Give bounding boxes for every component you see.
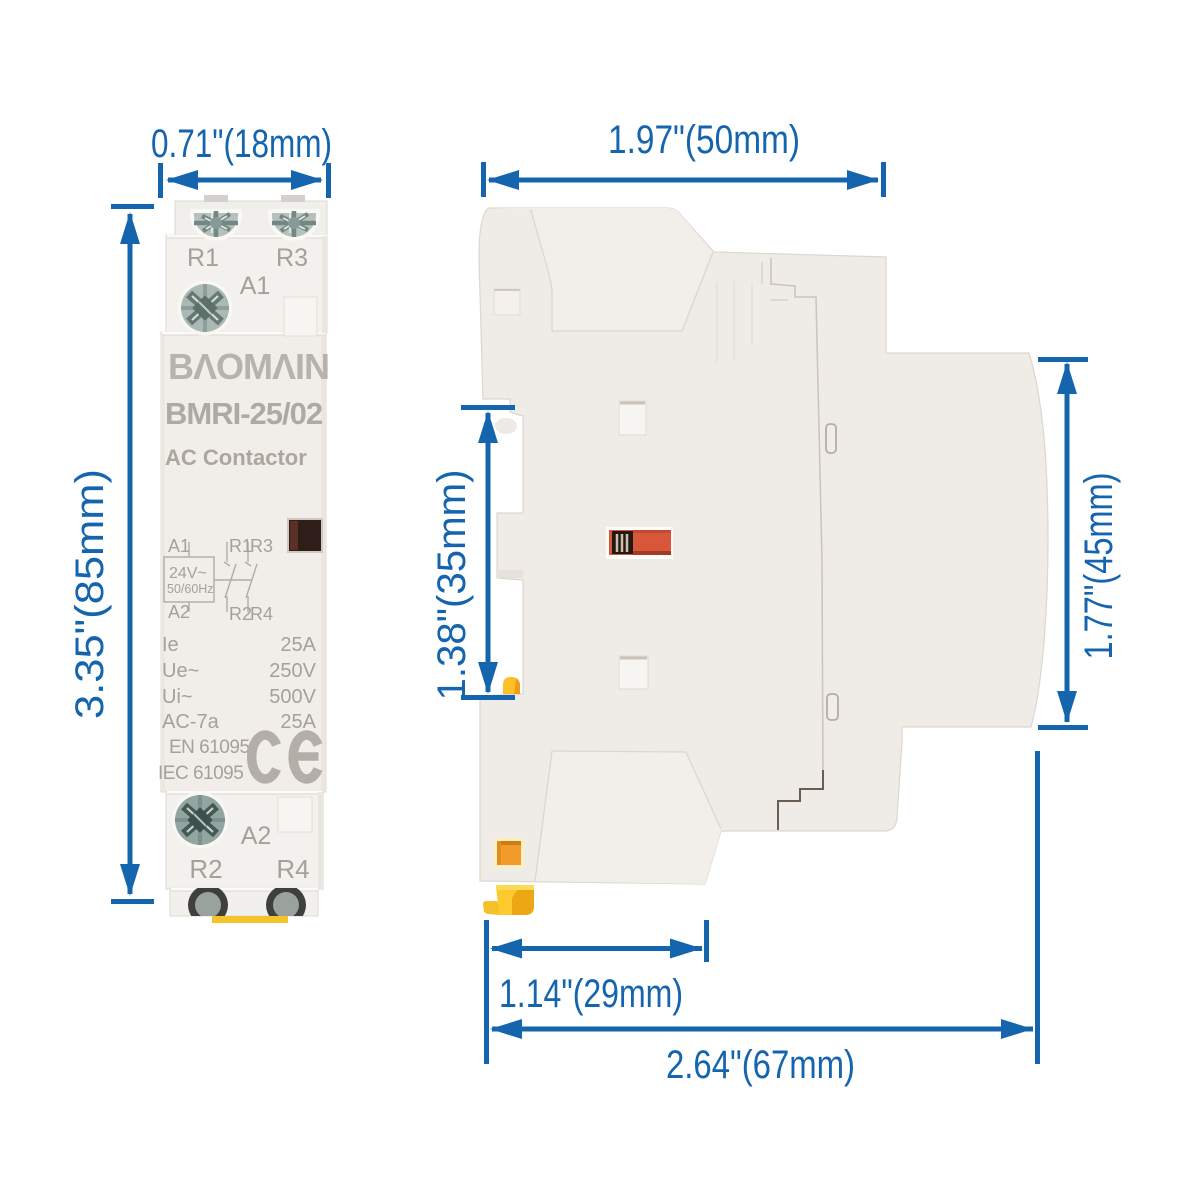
svg-text:1.77"(45mm): 1.77"(45mm) [1077,473,1121,660]
svg-text:BMRI-25/02: BMRI-25/02 [165,396,322,431]
svg-text:R4: R4 [276,854,309,884]
svg-text:R3: R3 [250,536,273,556]
svg-text:AC-7a: AC-7a [162,711,220,733]
svg-text:R2: R2 [189,854,222,884]
svg-text:25A: 25A [280,634,316,656]
svg-text:3.35"(85mm): 3.35"(85mm) [68,469,112,719]
svg-text:A2: A2 [241,822,272,850]
svg-text:AC Contactor: AC Contactor [165,445,307,470]
svg-text:1.97"(50mm): 1.97"(50mm) [608,118,800,162]
svg-text:500V: 500V [269,686,316,708]
svg-text:Ie: Ie [162,634,179,656]
svg-text:250V: 250V [269,660,316,682]
svg-text:1.38"(35mm): 1.38"(35mm) [430,470,474,701]
svg-text:24V~: 24V~ [169,565,207,582]
svg-text:2.64"(67mm): 2.64"(67mm) [666,1043,855,1087]
svg-text:R1: R1 [187,244,219,272]
svg-text:0.71"(18mm): 0.71"(18mm) [151,122,332,166]
svg-text:R1: R1 [229,536,252,556]
svg-text:R4: R4 [250,604,273,624]
svg-text:Ue~: Ue~ [162,660,199,682]
svg-text:1.14"(29mm): 1.14"(29mm) [499,972,683,1016]
svg-text:EN 61095: EN 61095 [169,737,250,758]
svg-text:IEC 61095: IEC 61095 [158,763,243,784]
svg-text:R2: R2 [229,604,252,624]
svg-text:R3: R3 [276,244,308,272]
svg-text:Ui~: Ui~ [162,686,193,708]
svg-text:BΛOMΛIN: BΛOMΛIN [168,346,329,387]
svg-text:50/60Hz: 50/60Hz [167,582,214,596]
svg-text:A1: A1 [168,536,190,556]
svg-text:25A: 25A [280,711,316,733]
svg-text:A1: A1 [240,272,271,300]
svg-text:A2: A2 [168,602,190,622]
